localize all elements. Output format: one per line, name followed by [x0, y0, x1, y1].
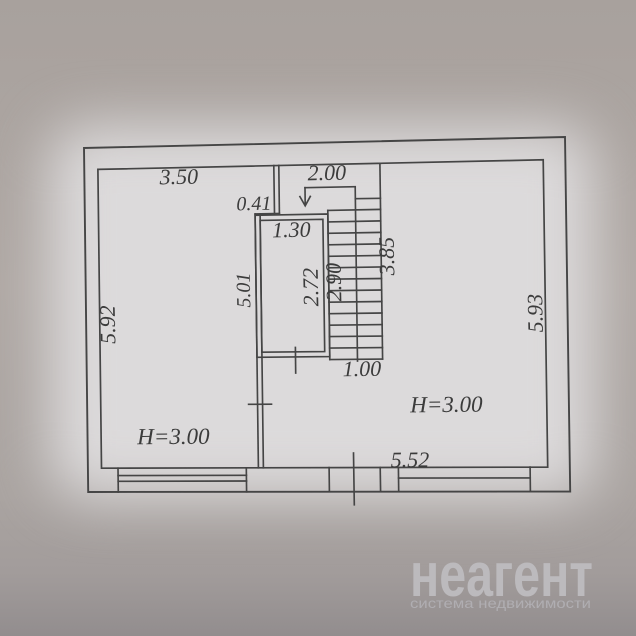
svg-text:5.52: 5.52 — [391, 447, 430, 472]
svg-text:H=3.00: H=3.00 — [409, 392, 483, 418]
svg-text:1.00: 1.00 — [343, 356, 382, 381]
svg-text:система недвижимости: система недвижимости — [410, 596, 591, 611]
svg-text:1.30: 1.30 — [272, 217, 311, 243]
svg-text:2.90: 2.90 — [321, 263, 347, 302]
svg-text:5.01: 5.01 — [233, 272, 256, 307]
svg-text:3.85: 3.85 — [374, 237, 400, 277]
svg-text:2.00: 2.00 — [307, 160, 346, 186]
svg-text:3.50: 3.50 — [158, 164, 198, 190]
svg-text:0.41: 0.41 — [236, 193, 271, 216]
svg-text:5.92: 5.92 — [95, 305, 121, 344]
svg-text:2.72: 2.72 — [298, 268, 324, 307]
svg-text:H=3.00: H=3.00 — [136, 424, 210, 450]
svg-text:5.93: 5.93 — [522, 294, 548, 333]
